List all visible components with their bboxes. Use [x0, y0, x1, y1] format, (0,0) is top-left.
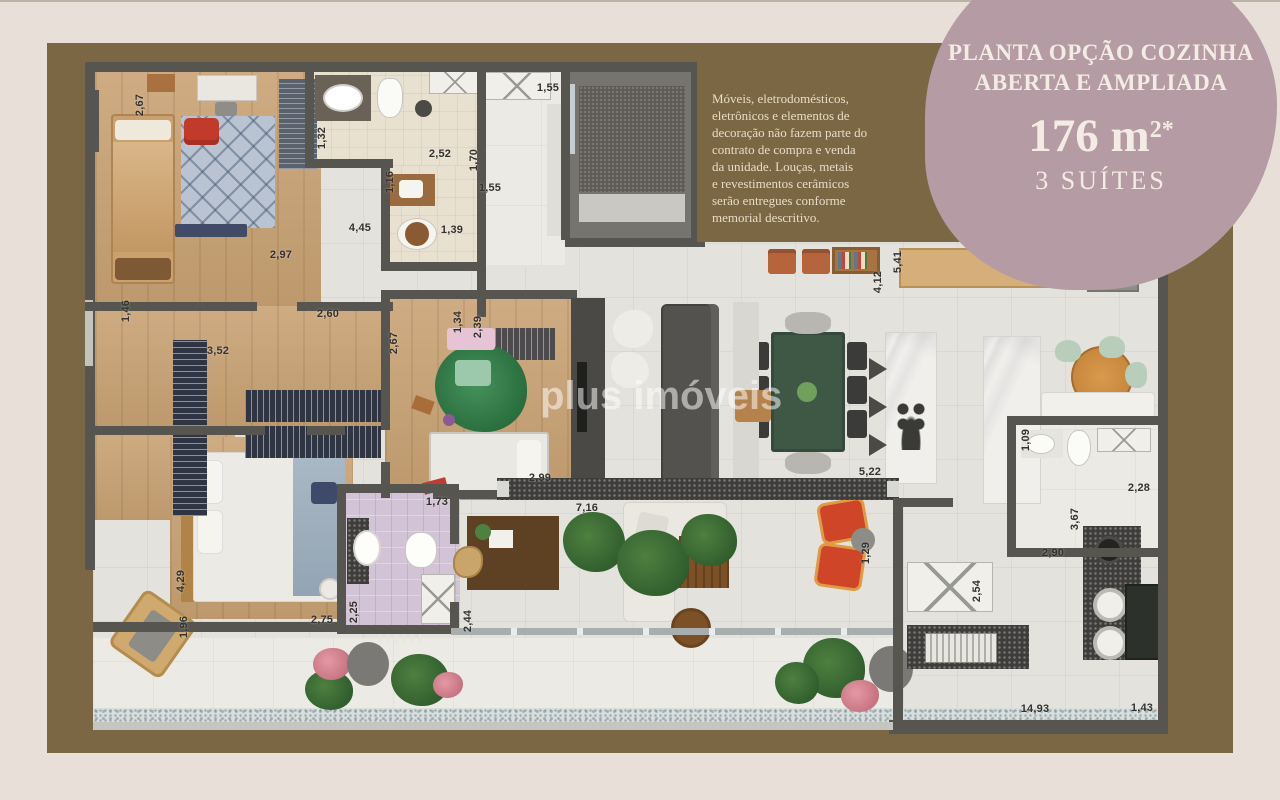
dimension-label: 3,52: [207, 345, 229, 357]
dimension-label: 1,96: [178, 616, 190, 638]
dimension-label: 1,43: [1131, 702, 1153, 714]
dimension-label: 5,22: [859, 466, 881, 478]
dimension-label: 2,60: [317, 308, 339, 320]
disclaimer-line: Móveis, eletrodomésticos,: [712, 90, 872, 107]
badge-area-sup: 2*: [1150, 117, 1174, 143]
dimension-label: 1,29: [860, 542, 872, 564]
dimension-label: 2,39: [472, 316, 484, 338]
disclaimer-line: e revestimentos cerâmicos: [712, 175, 872, 192]
disclaimer-line: da unidade. Louças, metais: [712, 158, 872, 175]
dimension-label: 1,32: [316, 127, 328, 149]
dimension-label: 2,54: [971, 580, 983, 602]
dimension-label: 3,67: [1069, 508, 1081, 530]
dimension-label: 14,93: [1021, 703, 1050, 715]
disclaimer-text: Móveis, eletrodomésticos,eletrônicos e e…: [712, 90, 872, 226]
dimension-label: 1,73: [426, 496, 448, 508]
badge-suites: 3 SUÍTES: [1035, 166, 1167, 196]
dimension-label: 1,55: [537, 82, 559, 94]
poster: 2,671,322,521,701,161,551,554,451,392,97…: [0, 0, 1280, 800]
dimension-label: 2,28: [1128, 482, 1150, 494]
dimension-label: 2,52: [429, 148, 451, 160]
disclaimer-line: memorial descritivo.: [712, 209, 872, 226]
dimension-label: 2,75: [311, 614, 333, 626]
dimension-label: 1,16: [384, 171, 396, 193]
watermark: plus imóveis: [540, 374, 782, 419]
dimension-label: 4,29: [175, 570, 187, 592]
disclaimer-line: decoração não fazem parte do: [712, 124, 872, 141]
dimension-label: 2,99: [529, 472, 551, 484]
badge-title-line2: ABERTA E AMPLIADA: [975, 68, 1228, 98]
dimension-label: 5,41: [892, 251, 904, 273]
dimension-label: 1,34: [452, 311, 464, 333]
dimension-label: 2,67: [388, 332, 400, 354]
dimension-label: 2,90: [1042, 547, 1064, 559]
dimension-label: 1,70: [468, 149, 480, 171]
badge-title-line1: PLANTA OPÇÃO COZINHA: [948, 38, 1254, 68]
dimension-label: 1,55: [479, 182, 501, 194]
badge-area: 176 m2*: [1028, 105, 1173, 161]
dimension-label: 2,44: [462, 610, 474, 632]
dimension-label: 2,97: [270, 249, 292, 261]
disclaimer-line: eletrônicos e elementos de: [712, 107, 872, 124]
dimension-label: 2,67: [134, 94, 146, 116]
disclaimer-line: contrato de compra e venda: [712, 141, 872, 158]
disclaimer-line: serão entregues conforme: [712, 192, 872, 209]
dimension-label: 7,16: [576, 502, 598, 514]
dimension-label: 4,12: [872, 271, 884, 293]
dimension-label: 2,25: [348, 601, 360, 623]
dimension-label: 1,46: [120, 300, 132, 322]
dimension-label: 1,09: [1020, 429, 1032, 451]
dimension-label: 4,45: [349, 222, 371, 234]
dimension-label: 1,39: [441, 224, 463, 236]
